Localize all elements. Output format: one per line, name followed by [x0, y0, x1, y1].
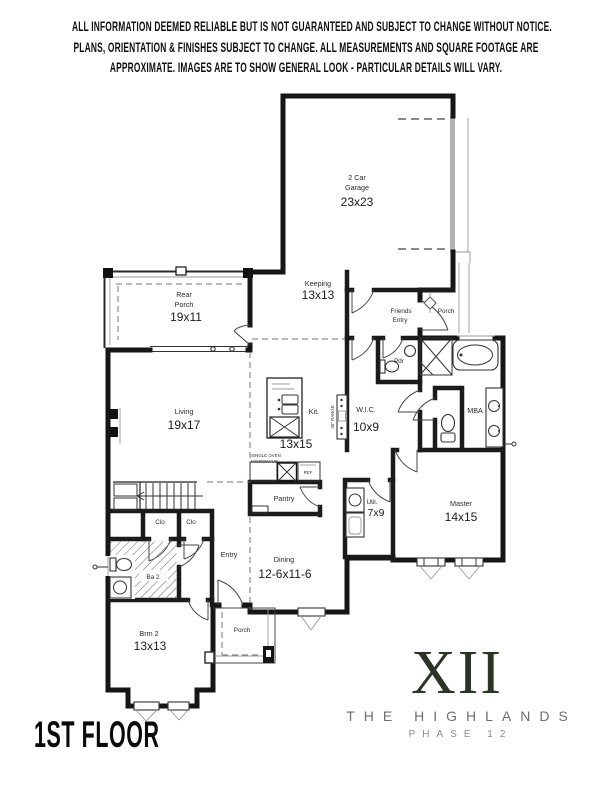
brand-block: XII THE HIGHLANDS PHASE 12 [332, 644, 582, 740]
fridge-label: REF [304, 470, 313, 475]
friends-entry-label-1: Friends [391, 308, 412, 315]
brand-numeral: XII [332, 644, 582, 702]
garage-dims: 23x23 [341, 195, 374, 209]
oven-note-2: MICROWAVE [251, 459, 278, 464]
keeping-label: Keeping [305, 279, 331, 288]
garage-label-2: Garage [345, 183, 369, 192]
bath2-label: Ba 2 [147, 574, 160, 581]
staircase [113, 482, 203, 510]
rear-porch-label-2: Porch [175, 300, 194, 309]
closet2-label: Clo [186, 519, 196, 526]
entry-label: Entry [221, 550, 238, 559]
brand-community-name: THE HIGHLANDS [332, 708, 582, 724]
kitchen-island [267, 378, 302, 438]
dining-dims: 12-6x11-6 [258, 567, 311, 581]
front-porch-label: Porch [438, 308, 455, 315]
brand-phase: PHASE 12 [332, 729, 582, 740]
washer-dryer [346, 488, 364, 537]
floor-title: 1ST FLOOR [34, 714, 160, 756]
lower-porch-label: Porch [234, 627, 251, 634]
wic-label: W.I.C. [356, 405, 376, 414]
flyer-page: ALL INFORMATION DEEMED RELIABLE BUT IS N… [0, 0, 612, 791]
master-bath-label: MBA [467, 406, 483, 415]
kitchen-dims: 13x15 [280, 437, 313, 451]
bathtub [453, 340, 498, 370]
range [337, 395, 347, 439]
utility-dims: 7x9 [368, 507, 385, 519]
rear-porch-dims: 19x11 [170, 310, 202, 324]
range-note: 36" RANGE [330, 405, 335, 428]
keeping-dims: 13x13 [302, 288, 335, 302]
fireplace [109, 408, 120, 444]
living-dims: 19x17 [168, 418, 201, 432]
master-dims: 14x15 [445, 510, 478, 524]
rear-porch-label-1: Rear [176, 290, 192, 299]
garage-label-1: 2 Car [348, 173, 366, 182]
bath2-room [110, 542, 177, 600]
porch-light-diamond [424, 293, 436, 313]
dining-label: Dining [274, 555, 294, 564]
utility-label: Util. [367, 499, 378, 506]
living-label: Living [175, 407, 194, 416]
vanity-double-sinks [486, 388, 503, 447]
pantry-label: Pantry [274, 494, 295, 503]
shower [420, 338, 452, 375]
wic-dims: 10x9 [353, 420, 379, 434]
room-labels: 2 Car Garage 23x23 Keeping 13x13 Rear Po… [134, 173, 483, 653]
friends-entry-label-2: Entry [393, 317, 409, 324]
master-label: Master [450, 499, 473, 508]
closet1-label: Clo [155, 519, 165, 526]
master-toilet [441, 415, 455, 443]
powder-label: Pdr [394, 358, 404, 365]
bedroom2-label: Brm 2 [139, 629, 158, 638]
bedroom2-dims: 13x13 [134, 639, 167, 653]
oven-note-1: SINGLE OVEN [251, 453, 281, 458]
kitchen-label: Kit. [309, 407, 319, 416]
